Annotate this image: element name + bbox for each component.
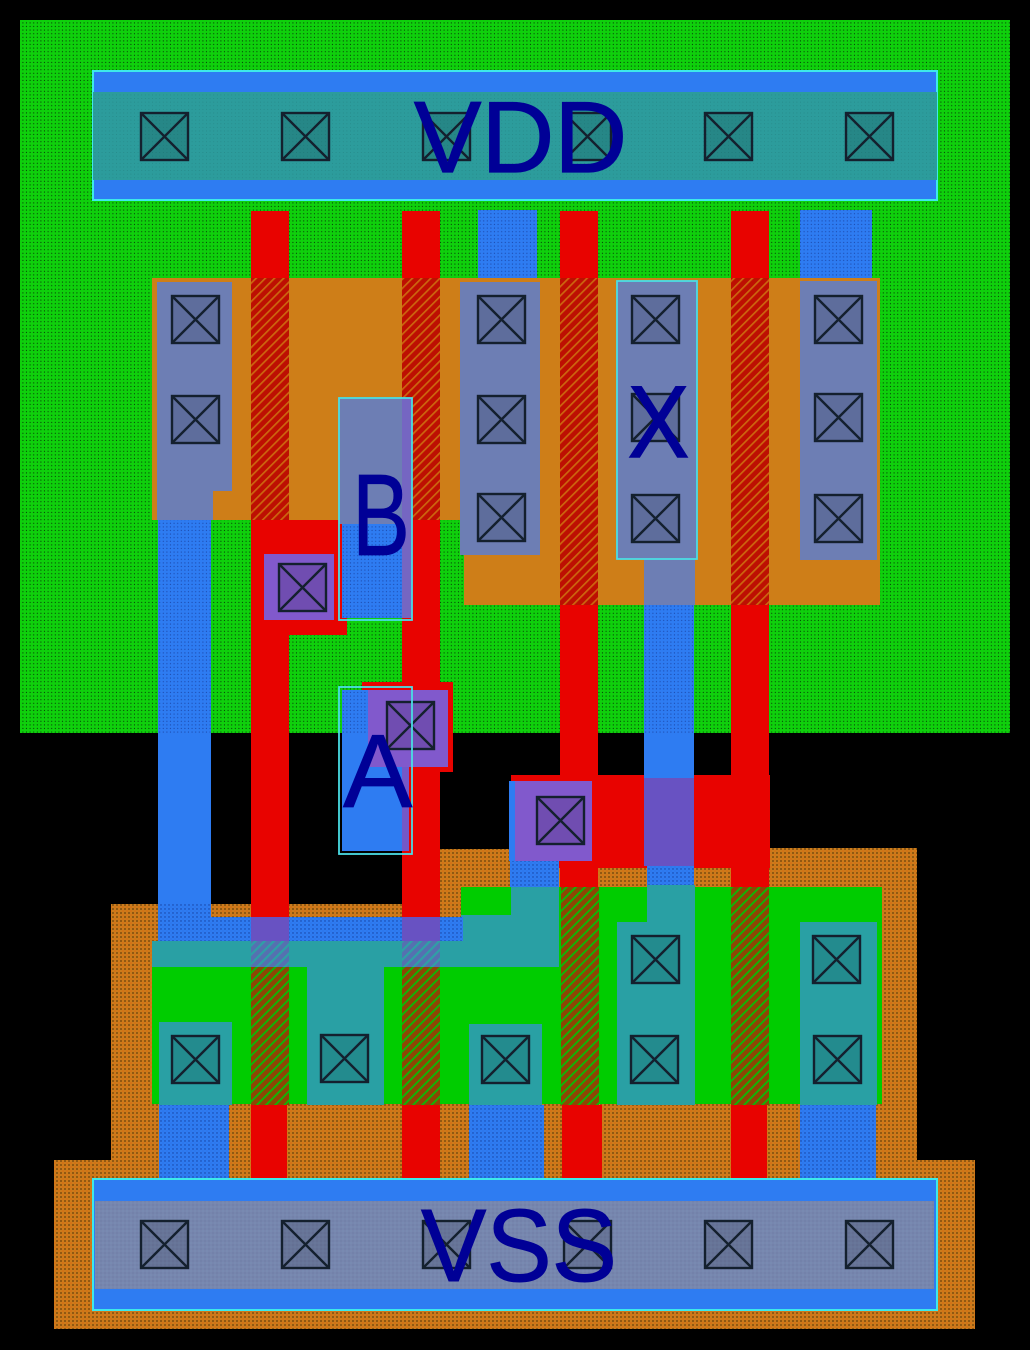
svg-text:B: B bbox=[352, 450, 410, 580]
svg-text:X: X bbox=[628, 365, 689, 479]
svg-text:A: A bbox=[343, 714, 413, 830]
svg-text:VDD: VDD bbox=[414, 82, 627, 194]
svg-text:VSS: VSS bbox=[421, 1188, 617, 1303]
